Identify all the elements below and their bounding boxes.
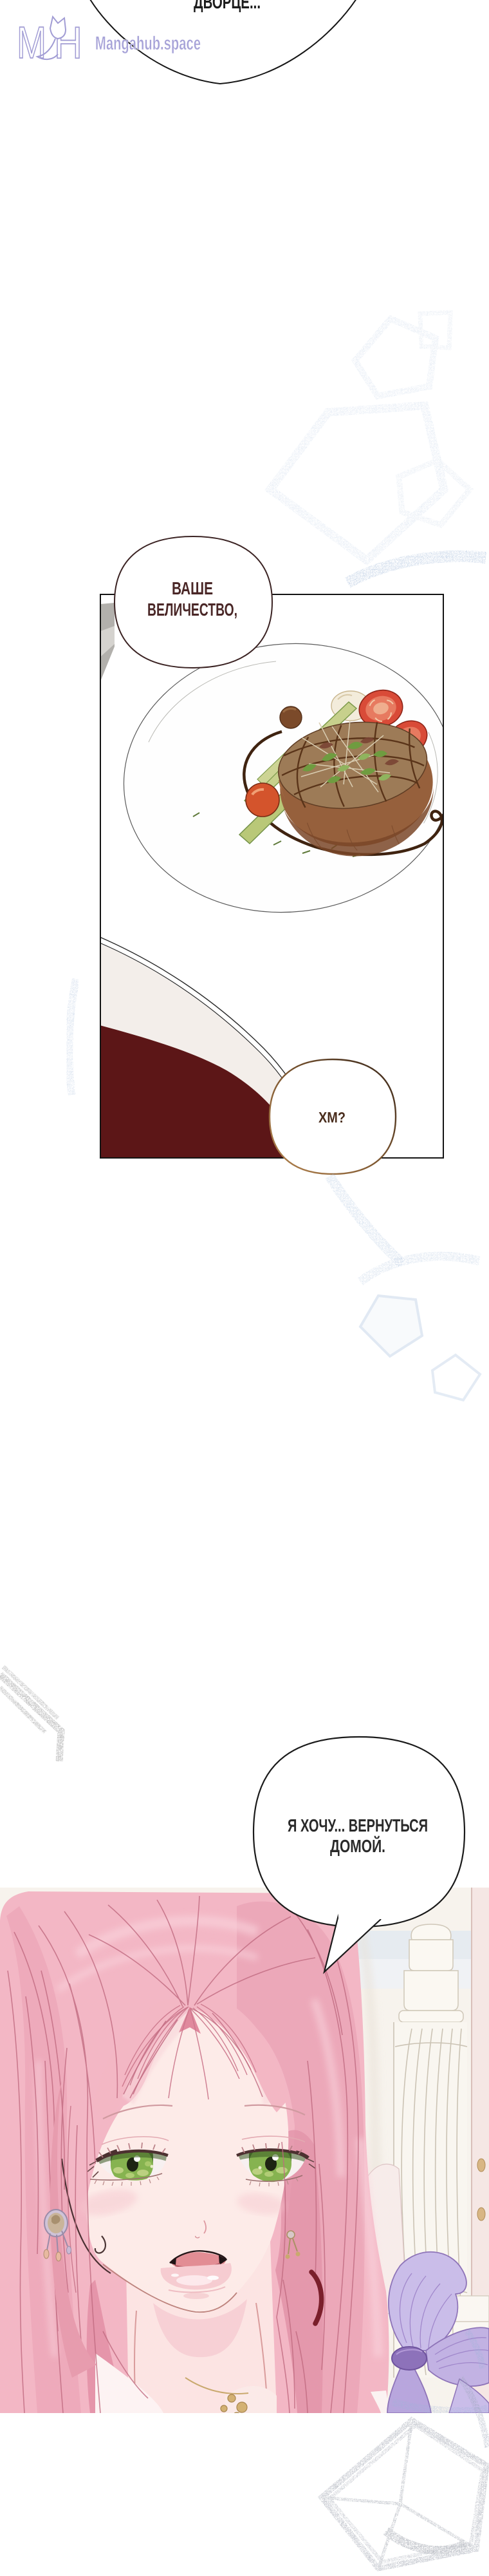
svg-text:ВЕЛИЧЕСТВО,: ВЕЛИЧЕСТВО, [147,600,237,620]
svg-text:M: M [17,17,46,68]
svg-text:Я ХОЧУ... ВЕРНУТЬСЯ: Я ХОЧУ... ВЕРНУТЬСЯ [288,1815,428,1835]
svg-text:ДВОРЦЕ...: ДВОРЦЕ... [194,0,261,13]
svg-text:ДОМОЙ.: ДОМОЙ. [330,1835,385,1856]
svg-text:ВАШЕ: ВАШЕ [172,578,213,598]
svg-text:ХМ?: ХМ? [318,1109,346,1126]
svg-text:Mangahub.space: Mangahub.space [95,33,201,54]
